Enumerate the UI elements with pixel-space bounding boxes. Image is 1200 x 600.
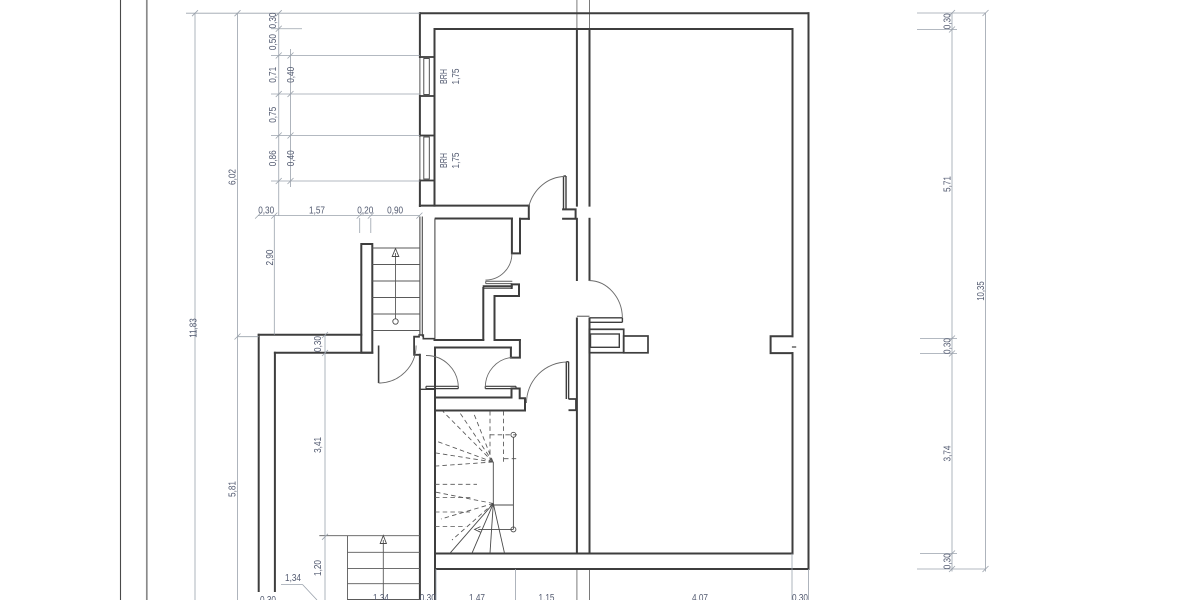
svg-text:0,30: 0,30 — [943, 13, 954, 30]
svg-text:0,50: 0,50 — [268, 34, 279, 51]
svg-text:0,30: 0,30 — [943, 337, 954, 354]
svg-text:5,81: 5,81 — [228, 481, 239, 497]
svg-text:0,86: 0,86 — [268, 150, 279, 166]
svg-text:0,30: 0,30 — [268, 12, 279, 29]
svg-text:3,41: 3,41 — [313, 437, 324, 453]
svg-text:0,90: 0,90 — [387, 206, 404, 217]
svg-text:4,07: 4,07 — [692, 593, 708, 600]
svg-text:1,47: 1,47 — [469, 593, 485, 600]
svg-text:11,83: 11,83 — [189, 318, 200, 338]
svg-text:0,30: 0,30 — [792, 593, 809, 600]
svg-text:2,90: 2,90 — [265, 249, 276, 266]
svg-text:1,75: 1,75 — [451, 153, 462, 169]
svg-text:0,71: 0,71 — [268, 67, 279, 83]
svg-text:BRH: BRH — [439, 69, 450, 84]
svg-text:10,35: 10,35 — [976, 281, 987, 301]
svg-text:6,02: 6,02 — [228, 169, 239, 185]
svg-text:1,34: 1,34 — [373, 593, 390, 600]
svg-text:0,30: 0,30 — [258, 206, 275, 217]
svg-text:1,20: 1,20 — [313, 559, 324, 576]
svg-text:0,30: 0,30 — [260, 595, 277, 600]
svg-text:0,30: 0,30 — [420, 593, 437, 600]
svg-text:0,40: 0,40 — [286, 66, 297, 83]
svg-text:1,34: 1,34 — [285, 573, 302, 584]
svg-text:0,40: 0,40 — [286, 150, 297, 167]
svg-text:1,15: 1,15 — [539, 593, 555, 600]
svg-text:BRH: BRH — [439, 153, 450, 168]
svg-text:1,75: 1,75 — [451, 69, 462, 85]
svg-text:1,57: 1,57 — [309, 206, 325, 217]
svg-text:0,30: 0,30 — [313, 335, 324, 352]
svg-text:0,75: 0,75 — [268, 107, 279, 123]
svg-text:5,71: 5,71 — [943, 176, 954, 192]
svg-text:3,74: 3,74 — [943, 445, 954, 462]
svg-text:0,20: 0,20 — [357, 206, 374, 217]
svg-text:0,30: 0,30 — [943, 553, 954, 570]
